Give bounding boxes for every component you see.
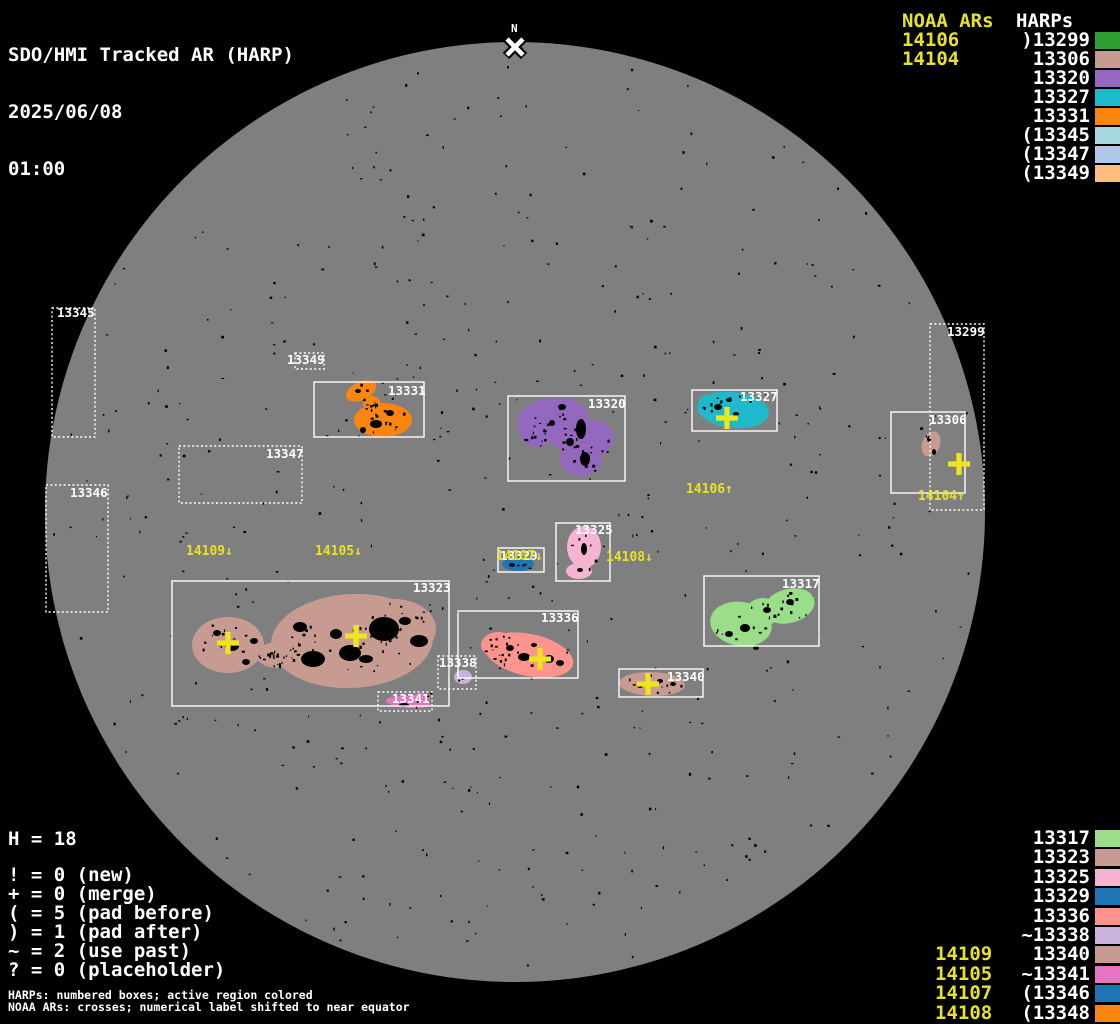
noaa-ar-disk-label: 14104↑ <box>918 489 965 504</box>
harp-box-label-13299: 13299 <box>947 324 985 339</box>
harp-number: 13340 <box>1033 945 1090 964</box>
harp-box-label-13317: 13317 <box>782 576 820 591</box>
harp-box-label-13327: 13327 <box>740 389 778 404</box>
date-label: 2025/06/08 <box>8 103 294 122</box>
harp-legend-row: 14108(13348 <box>900 1004 1120 1023</box>
harp-color-swatch <box>1095 830 1120 847</box>
harp-color-swatch <box>1095 927 1120 944</box>
harp-box-label-13349: 13349 <box>287 352 325 367</box>
active-region-13338 <box>454 670 472 684</box>
harp-color-swatch <box>1095 985 1120 1002</box>
harp-box-label-13345: 13345 <box>57 305 95 320</box>
noaa-ar-number: 14108 <box>935 1004 992 1023</box>
noaa-ar-number: 14109 <box>935 945 992 964</box>
harp-color-swatch <box>1095 849 1120 866</box>
north-label: N <box>511 22 518 35</box>
harp-color-swatch <box>1095 51 1120 68</box>
page-title-block: SDO/HMI Tracked AR (HARP) 2025/06/08 01:… <box>8 8 294 217</box>
harp-box-label-13346: 13346 <box>70 485 108 500</box>
harp-box-label-13338: 13338 <box>439 655 477 670</box>
harp-box-label-13323: 13323 <box>413 580 451 595</box>
harp-number: (13346 <box>1021 984 1090 1003</box>
harp-color-swatch <box>1095 165 1120 182</box>
harp-box-label-13347: 13347 <box>266 446 304 461</box>
harp-number: 13329 <box>1033 887 1090 906</box>
harp-box-label-13320: 13320 <box>588 396 626 411</box>
harp-color-swatch <box>1095 1005 1120 1022</box>
noaa-ar-disk-label: 14108↓ <box>606 550 653 565</box>
harp-box-label-13341: 13341 <box>392 691 430 706</box>
harp-color-swatch <box>1095 146 1120 163</box>
harp-box-label-13331: 13331 <box>388 383 426 398</box>
harp-number: (13349 <box>1021 164 1090 183</box>
noaa-ar-number: 14104 <box>902 50 959 69</box>
harp-legend-row: 13323 <box>900 848 1120 867</box>
harp-color-swatch <box>1095 32 1120 49</box>
noaa-ar-disk-label: 14107↓ <box>496 549 543 564</box>
harp-color-swatch <box>1095 908 1120 925</box>
h-count-label: H = 18 <box>8 830 77 849</box>
harp-color-swatch <box>1095 108 1120 125</box>
harp-color-swatch <box>1095 70 1120 87</box>
harp-color-swatch <box>1095 966 1120 983</box>
harp-box-label-13336: 13336 <box>541 610 579 625</box>
harp-legend-row: (13349 <box>900 164 1120 183</box>
harp-box-label-13340: 13340 <box>667 669 705 684</box>
noaa-ar-disk-label: 14109↓ <box>186 544 233 559</box>
symbol-legend-line: ? = 0 (placeholder) <box>8 961 225 980</box>
harp-legend-row: 14107(13346 <box>900 984 1120 1003</box>
sdo-hmi-harp-screen: 1329913306133201332713331133451334613347… <box>0 0 1120 1024</box>
harp-box-label-13306: 13306 <box>929 412 967 427</box>
harp-color-swatch <box>1095 127 1120 144</box>
noaa-ar-disk-label: 14106↑ <box>686 482 733 497</box>
harp-legend-row: 13329 <box>900 887 1120 906</box>
harp-box-label-13325: 13325 <box>575 522 613 537</box>
harp-color-swatch <box>1095 869 1120 886</box>
noaa-ar-disk-label: 14105↓ <box>315 544 362 559</box>
harp-number: 13323 <box>1033 848 1090 867</box>
harp-color-swatch <box>1095 946 1120 963</box>
footnote-line: NOAA ARs: crosses; numerical label shift… <box>8 1001 410 1013</box>
page-title: SDO/HMI Tracked AR (HARP) <box>8 46 294 65</box>
harp-number: (13348 <box>1021 1004 1090 1023</box>
harp-color-swatch <box>1095 888 1120 905</box>
time-label: 01:00 <box>8 160 294 179</box>
harp-color-swatch <box>1095 89 1120 106</box>
noaa-ar-number: 14107 <box>935 984 992 1003</box>
harp-legend-row: 1410913340 <box>900 945 1120 964</box>
